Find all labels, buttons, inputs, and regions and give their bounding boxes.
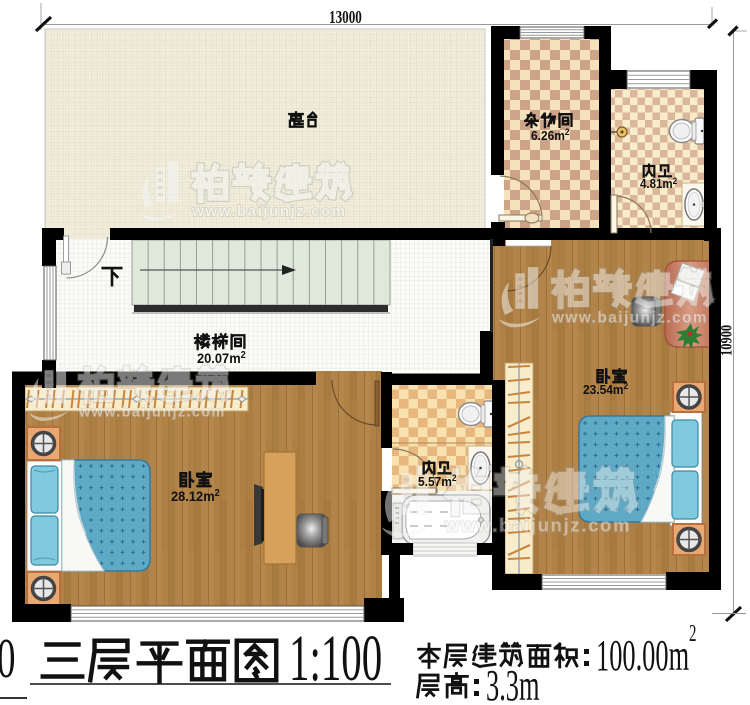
svg-text:10900: 10900: [718, 325, 736, 356]
svg-text:28.12m2: 28.12m2: [171, 488, 220, 504]
svg-text:www.baijunjz.com: www.baijunjz.com: [551, 309, 708, 326]
svg-text:2: 2: [689, 621, 696, 647]
svg-text:20.07m2: 20.07m2: [197, 350, 246, 366]
svg-text:4.81m2: 4.81m2: [640, 176, 677, 191]
svg-text:13000: 13000: [329, 8, 362, 27]
svg-text:www.baijunjz.com: www.baijunjz.com: [78, 404, 226, 420]
svg-text:23.54m2: 23.54m2: [583, 381, 628, 397]
svg-text:100.00m: 100.00m: [596, 631, 689, 680]
svg-text:3.3m: 3.3m: [486, 661, 540, 705]
svg-text:www.baijunjz.com: www.baijunjz.com: [444, 514, 631, 535]
svg-text:www.baijunjz.com: www.baijunjz.com: [191, 203, 347, 220]
svg-text:0: 0: [0, 629, 15, 690]
svg-text:5.57m2: 5.57m2: [418, 473, 457, 489]
svg-text:6.26m2: 6.26m2: [531, 127, 570, 143]
